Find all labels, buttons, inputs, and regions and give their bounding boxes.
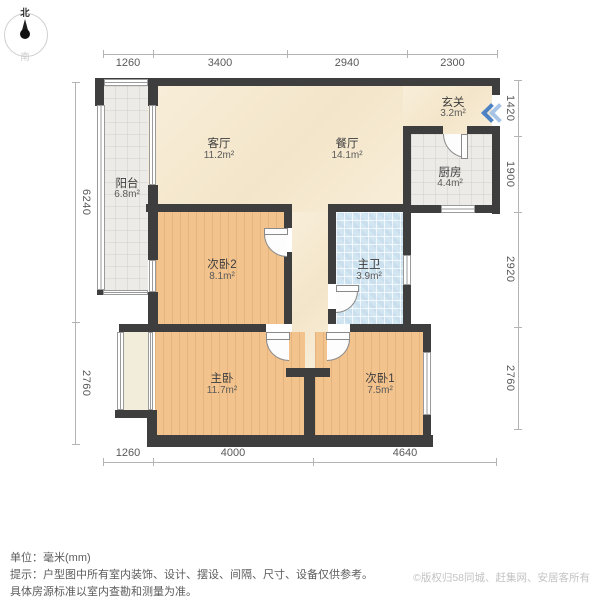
wall-bedrooms-top-b [350, 324, 431, 332]
dining-label: 餐厅 [312, 135, 382, 151]
dim-bottom-1: 1260 [103, 447, 153, 459]
dim-right-3: 2920 [503, 212, 516, 327]
tick [313, 458, 314, 466]
floorplan-canvas: 北 南 [0, 0, 600, 600]
entry-area: 3.2m² [418, 108, 488, 119]
wall-corridor-left-b [284, 252, 292, 324]
tick [514, 429, 522, 430]
bedroom1-area: 7.5m² [345, 385, 415, 396]
dim-right-4: 2760 [503, 327, 516, 429]
bathroom-window [403, 255, 411, 285]
master-area: 11.7m² [187, 385, 257, 396]
wall-entry-kitchen-b [467, 126, 500, 134]
wall-living-bedroom2 [146, 204, 292, 212]
wall-bottom [147, 435, 433, 447]
wall-bedroom1-right-b [423, 415, 431, 447]
tick [153, 458, 154, 466]
wall-top-left-corner [95, 78, 104, 106]
wall-corridor-left-a [284, 204, 292, 228]
kitchen-window [441, 205, 475, 213]
compass-south-label: 南 [15, 49, 35, 63]
dining-area: 14.1m² [312, 150, 382, 161]
wall-balcony-right-top [148, 78, 158, 106]
master-label: 主卧 [187, 370, 257, 386]
balcony-bottom-window [103, 290, 148, 295]
tips-note-line1: 提示：户型图中所有室内装饰、设计、摆设、间隔、尺寸、设备仅供参考。 [10, 566, 373, 582]
dim-top-1: 1260 [103, 57, 153, 69]
bay-master-glass [148, 332, 153, 410]
wall-kitchen-bottom-b [475, 205, 500, 213]
balcony-living-glass [149, 105, 156, 185]
dimline-left [75, 82, 76, 445]
compass-needle-dot-icon [20, 29, 30, 39]
wall-right-upper [492, 78, 500, 95]
master-door-leaf [266, 332, 290, 340]
dim-left-1: 6240 [79, 82, 92, 322]
bathroom-area: 3.9m² [334, 271, 404, 282]
dim-top-2: 3400 [153, 57, 287, 69]
living-label: 客厅 [184, 135, 254, 151]
bay-window-glass [117, 332, 124, 410]
dim-bottom-3: 4640 [313, 447, 497, 459]
wall-bedrooms-top-a [119, 324, 266, 332]
wall-bedroom1-right-a [423, 324, 431, 352]
balcony-bedroom2-window [149, 260, 156, 292]
dim-left-2: 2760 [79, 322, 92, 444]
balcony-area: 6.8m² [92, 189, 162, 200]
bathroom-label: 主卫 [334, 256, 404, 272]
dim-bottom-2: 4000 [153, 447, 313, 459]
tick [496, 458, 497, 466]
balcony-top-window [104, 79, 148, 86]
copyright-text: ©版权归58同城、赶集网、安居客所有 [413, 570, 590, 585]
dim-top-4: 2300 [407, 57, 498, 69]
wall-bedroom-divider [304, 368, 315, 443]
bedroom1-window [423, 352, 431, 415]
dim-right-1: 1420 [503, 80, 516, 136]
tips-note-line2: 具体房源标准以室内查勘和测量为准。 [10, 583, 197, 599]
dim-top-3: 2940 [287, 57, 407, 69]
tick [72, 444, 80, 445]
compass-north-label: 北 [15, 5, 35, 19]
dim-right-2: 1900 [503, 136, 516, 212]
wall-entry-kitchen-a [403, 126, 443, 134]
bedroom2-label: 次卧2 [187, 256, 257, 272]
wall-right-mid [492, 126, 500, 214]
wall-corridor-right-b [328, 309, 336, 324]
bedroom1-door-leaf [326, 332, 350, 340]
unit-note: 单位：毫米(mm) [10, 549, 91, 565]
bathroom-door-leaf [336, 285, 359, 292]
wall-kitchen-left [403, 126, 411, 213]
wall-bathroom-right-a [403, 204, 411, 255]
bedroom2-area: 8.1m² [187, 271, 257, 282]
wall-bedroom2-left [148, 292, 158, 332]
living-area: 11.2m² [184, 150, 254, 161]
dimline-right [518, 80, 519, 430]
bedroom2-door-leaf [264, 228, 288, 235]
bedroom1-label: 次卧1 [345, 370, 415, 386]
wall-bay-bottom [115, 410, 155, 418]
dimline-bottom [103, 462, 497, 463]
kitchen-door-leaf [461, 134, 468, 159]
dimline-top [103, 54, 498, 55]
tick [103, 458, 104, 466]
wall-bathroom-top [328, 204, 411, 212]
kitchen-area: 4.4m² [415, 178, 485, 189]
